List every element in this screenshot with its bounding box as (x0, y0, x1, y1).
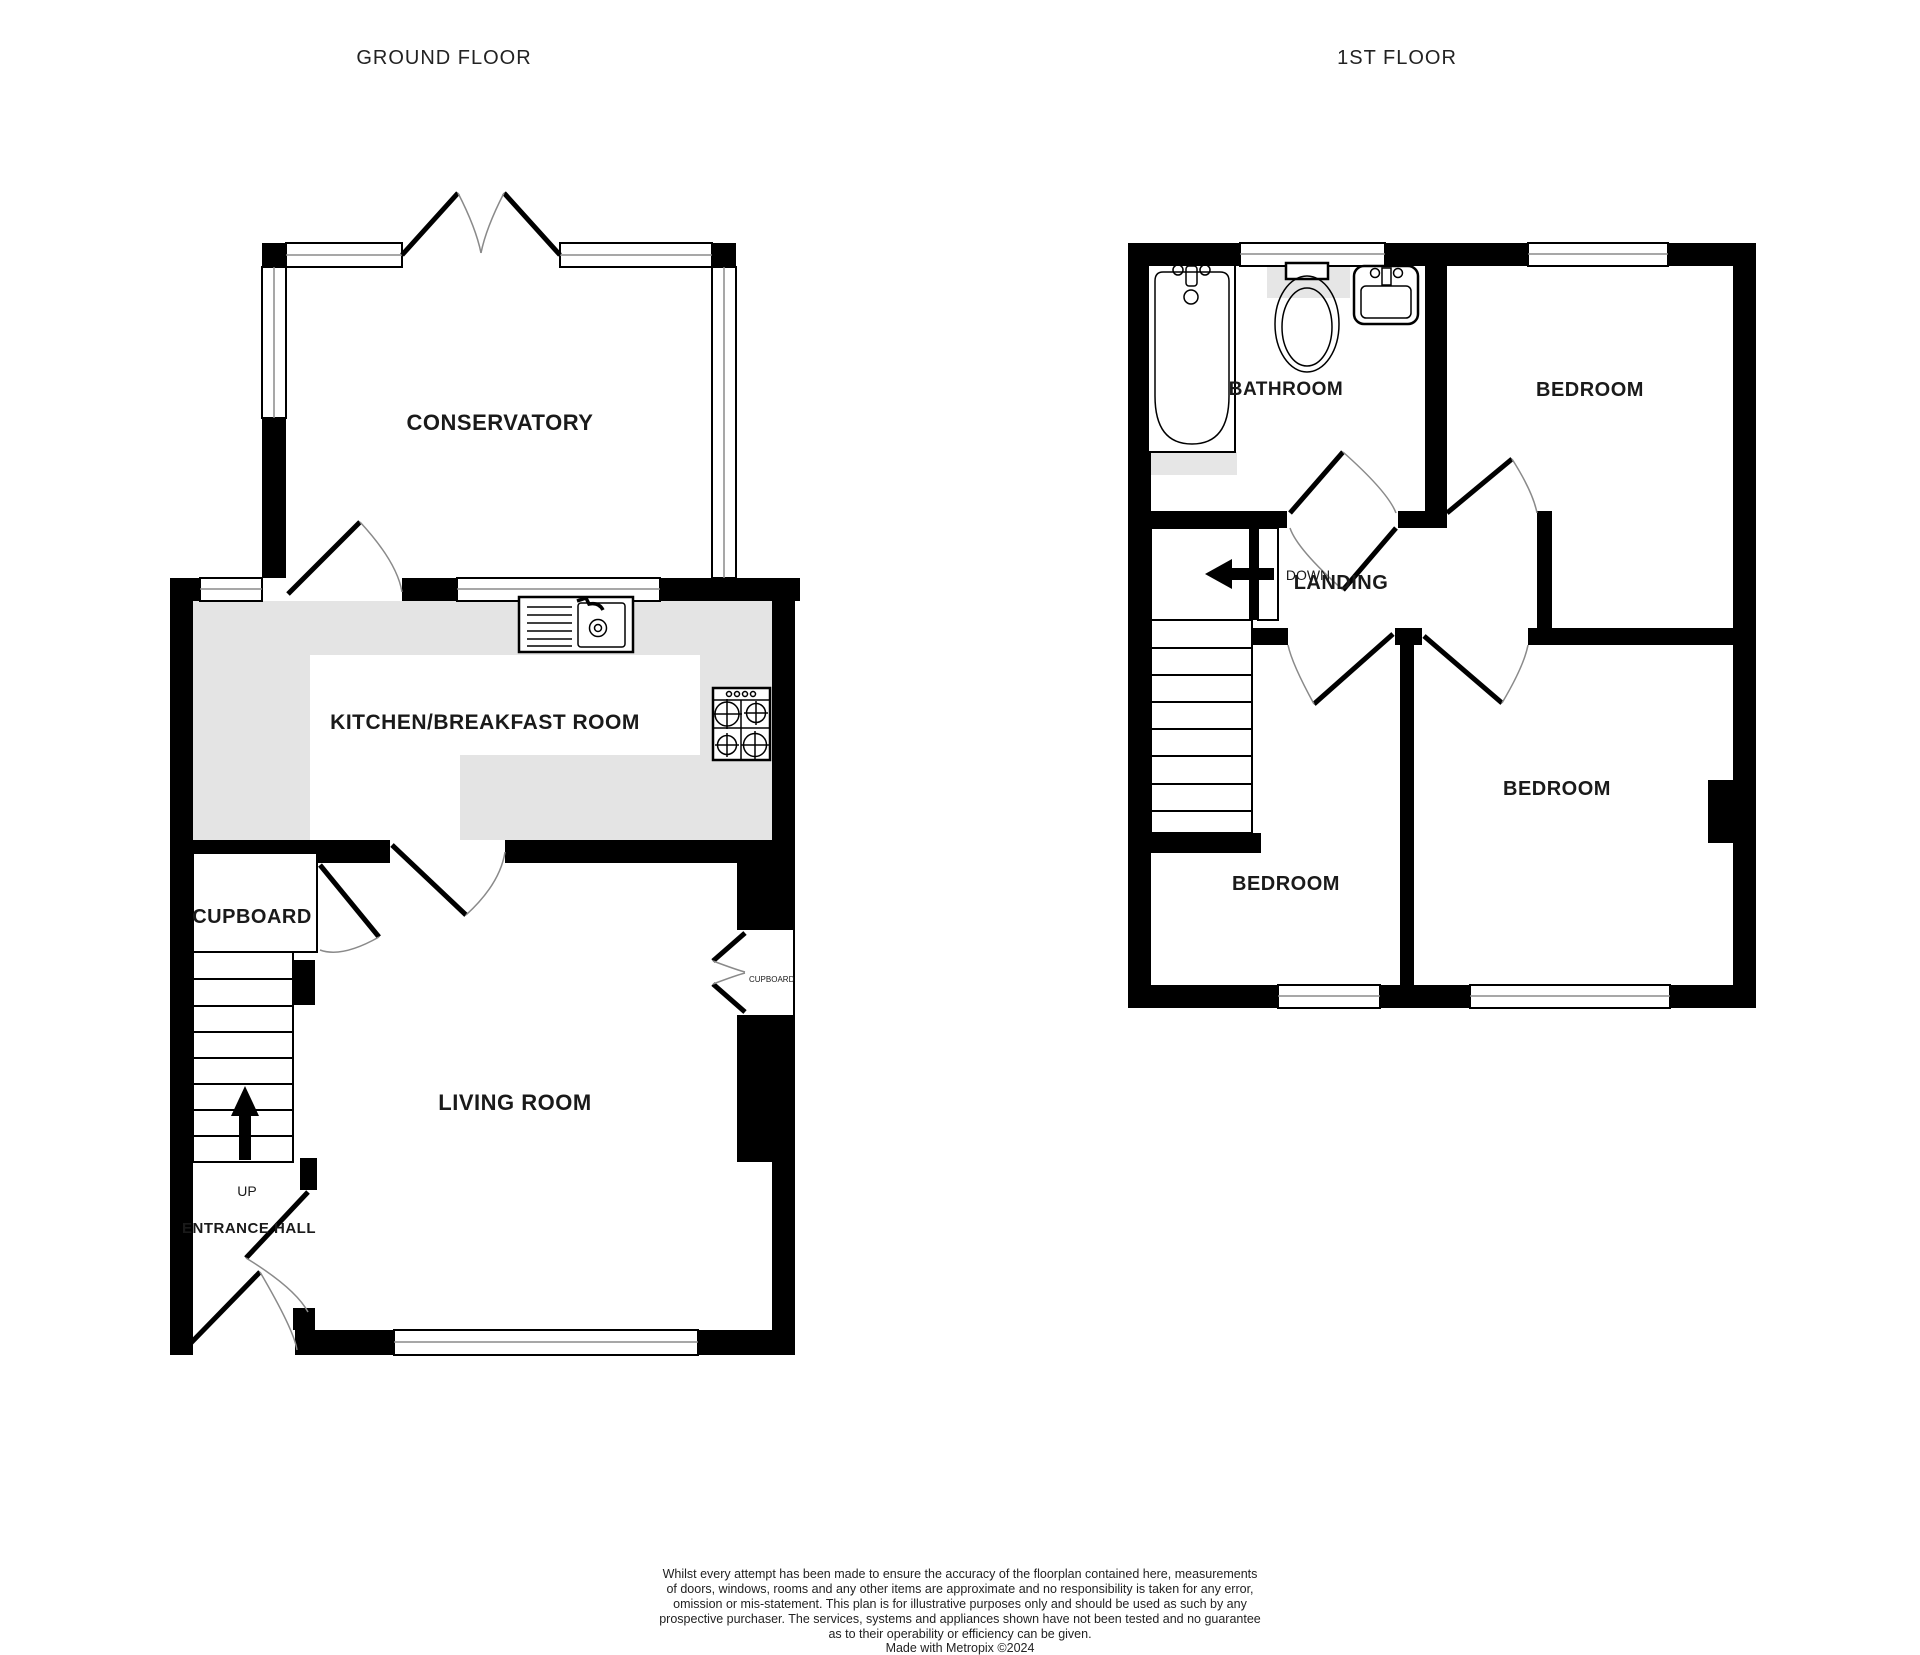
bedroom-rear-right-label: BEDROOM (1503, 778, 1611, 800)
disclaimer-line-2: of doors, windows, rooms and any other i… (666, 1582, 1253, 1596)
bedroom-rear-left-label: BEDROOM (1232, 873, 1340, 895)
alcove-cupboard-niche (745, 930, 793, 1015)
wash-basin-icon (1354, 266, 1418, 324)
disclaimer-line-4: prospective purchaser. The services, sys… (659, 1612, 1261, 1626)
alcove-cupboard-label: CUPBOARD (749, 975, 795, 984)
hall-living-door (246, 1192, 308, 1312)
bedroom-front-door (1447, 459, 1537, 513)
front-entrance-door (186, 1272, 297, 1350)
disclaimer-text: Whilst every attempt has been made to en… (659, 1567, 1261, 1655)
disclaimer-credit: Made with Metropix ©2024 (886, 1641, 1035, 1655)
kitchen-living-door (392, 845, 505, 915)
stairs-up-label: UP (237, 1183, 256, 1199)
living-room-label: LIVING ROOM (438, 1090, 591, 1115)
disclaimer-line-1: Whilst every attempt has been made to en… (663, 1567, 1258, 1581)
ground-floor-title: GROUND FLOOR (356, 47, 531, 69)
bedroom-front-label: BEDROOM (1536, 379, 1644, 401)
bathtub-icon (1148, 265, 1235, 452)
conservatory-label: CONSERVATORY (407, 410, 594, 435)
first-floor-title: 1ST FLOOR (1337, 47, 1457, 69)
bathroom-label: BATHROOM (1229, 379, 1343, 400)
kitchen-conservatory-door (288, 522, 402, 594)
hall-cupboard-label: CUPBOARD (192, 906, 312, 928)
bedroom-rear-right-door (1424, 636, 1528, 703)
staircase-down (1151, 528, 1288, 853)
disclaimer-line-5: as to their operability or efficiency ca… (828, 1627, 1091, 1641)
hall-cupboard-outline (193, 853, 317, 952)
conservatory-french-doors (402, 193, 560, 255)
kitchen-sink-icon (519, 597, 633, 652)
bedroom-rear-left-door (1288, 634, 1393, 704)
ground-floor-plan: CONSERVATORY KITCHEN/BREAKFAST ROOM CUPB… (170, 193, 800, 1355)
staircase-up (193, 952, 293, 1162)
kitchen-label: KITCHEN/BREAKFAST ROOM (330, 711, 640, 734)
landing-label: LANDING (1294, 572, 1389, 594)
hall-cupboard-door (320, 865, 379, 952)
alcove-cupboard-doors (713, 933, 745, 1012)
first-floor-plan: BATHROOM BEDROOM BEDROOM BEDROOM DOWN LA… (1128, 243, 1756, 1008)
hob-icon (712, 688, 770, 760)
floorplan-canvas: GROUND FLOOR 1ST FLOOR (0, 0, 1920, 1655)
entrance-hall-label: ENTRANCE HALL (182, 1220, 316, 1237)
disclaimer-line-3: omission or mis-statement. This plan is … (673, 1597, 1247, 1611)
